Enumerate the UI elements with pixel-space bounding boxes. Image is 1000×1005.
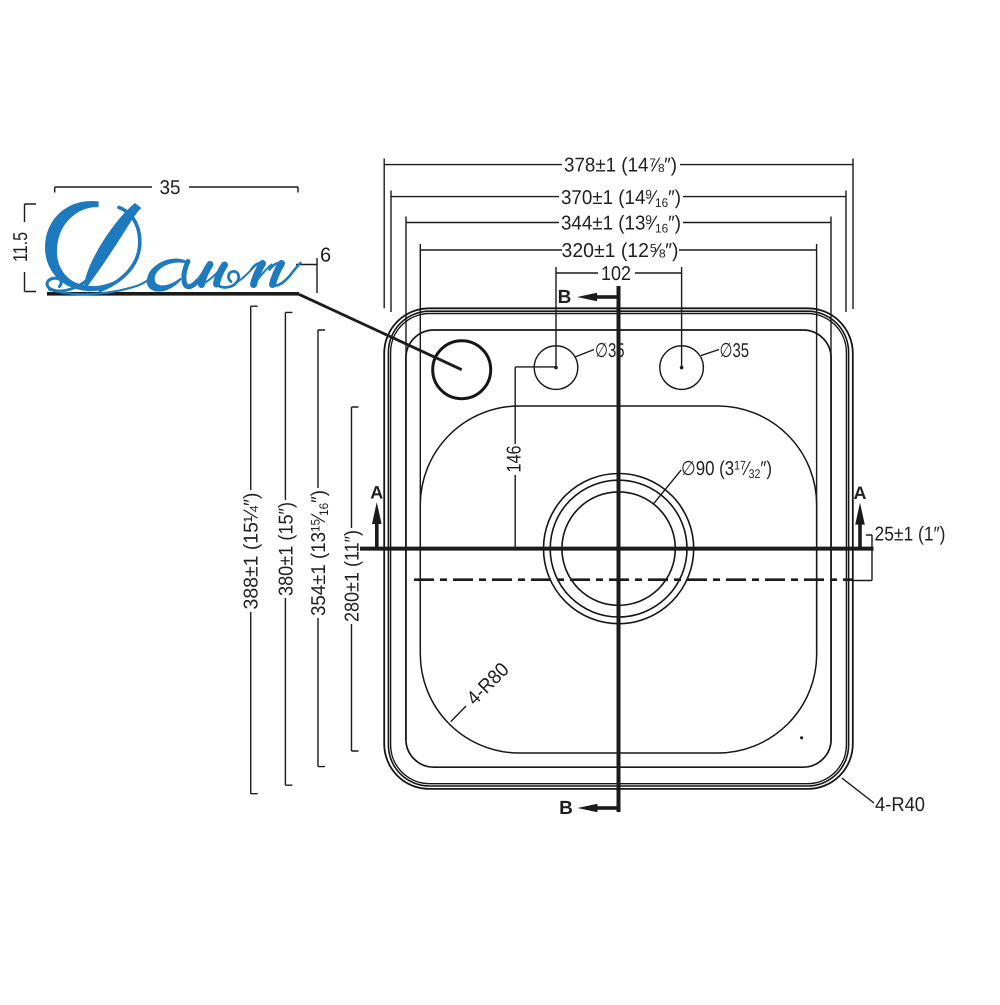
svg-text:A: A xyxy=(370,483,383,503)
svg-text:6: 6 xyxy=(320,245,331,267)
svg-text:25±1 (1″): 25±1 (1″) xyxy=(875,524,946,546)
svg-text:11.5: 11.5 xyxy=(10,232,32,262)
svg-text:146: 146 xyxy=(504,446,526,473)
svg-text:B: B xyxy=(559,798,573,819)
svg-text:∅35: ∅35 xyxy=(595,340,625,362)
svg-text:102: 102 xyxy=(601,263,631,285)
svg-text:380±1 (15″): 380±1 (15″) xyxy=(275,502,297,596)
svg-text:4-R40: 4-R40 xyxy=(875,794,925,816)
svg-text:378±1 (14⅞″): 378±1 (14⅞″) xyxy=(564,155,677,177)
svg-text:388±1 (15¼″): 388±1 (15¼″) xyxy=(241,493,263,610)
svg-text:35: 35 xyxy=(160,177,181,199)
svg-text:∅35: ∅35 xyxy=(720,340,750,362)
svg-text:280±1 (11″): 280±1 (11″) xyxy=(342,530,364,622)
svg-text:320±1 (12⅝″): 320±1 (12⅝″) xyxy=(562,240,679,262)
svg-text:B: B xyxy=(558,287,572,308)
svg-text:A: A xyxy=(854,483,867,503)
